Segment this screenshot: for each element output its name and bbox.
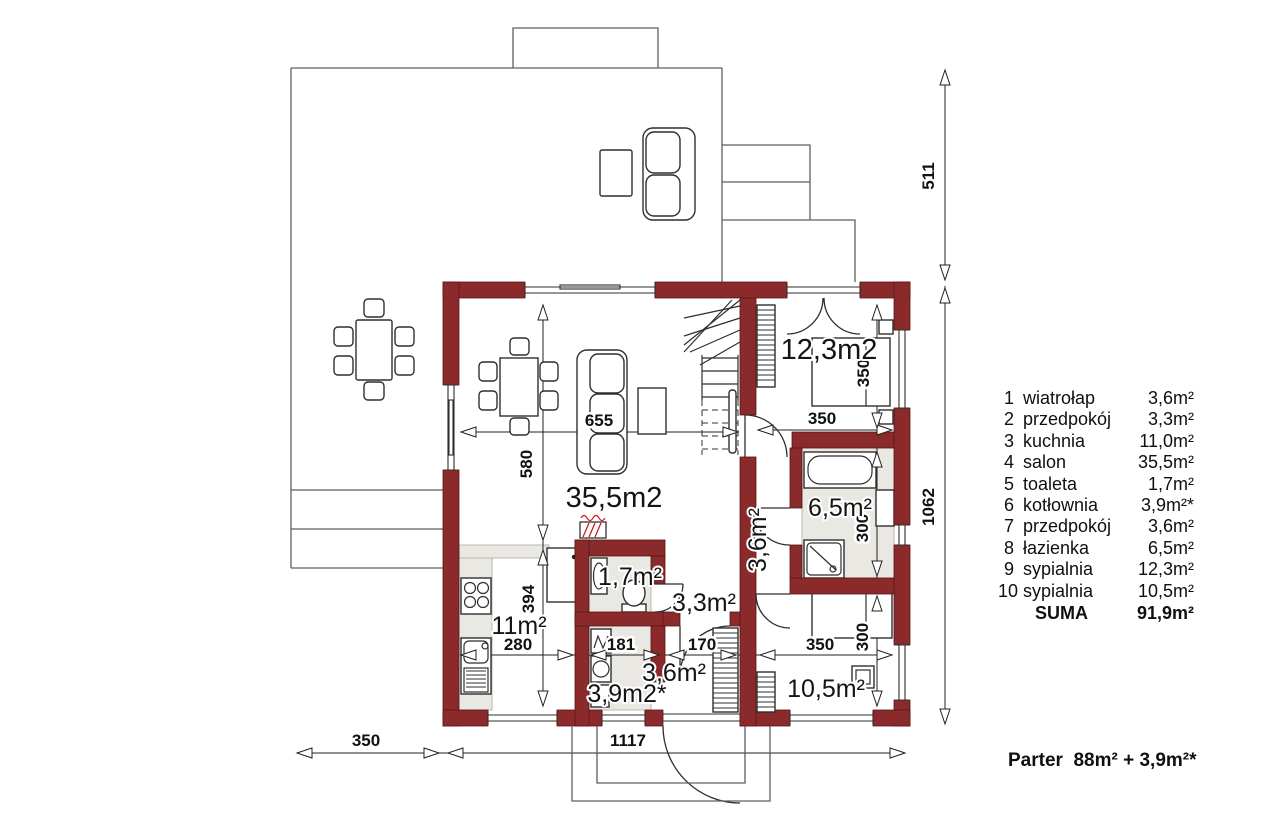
stair-railing <box>729 390 736 453</box>
coffee-table <box>638 388 666 434</box>
room-legend: 1wiatrołap3,6m² 2przedpokój3,3m² 3kuchni… <box>998 388 1194 624</box>
room-label-przedpokoj7: 3,6m² <box>744 508 772 572</box>
sink <box>461 638 491 694</box>
legend-row: 5toaleta1,7m² <box>998 474 1194 495</box>
dim-kotlownia-width: 181 <box>607 635 635 654</box>
floorplan-page: 350 1117 511 1062 655 580 394 280 181 17… <box>0 0 1280 822</box>
room-label-lazienka: 6,5m² <box>808 494 872 522</box>
dim-salon-depth: 580 <box>517 450 536 478</box>
wardrobe-bedroom9 <box>757 305 775 387</box>
legend-suma-row: SUMA91,9m² <box>998 603 1194 624</box>
room-label-kuchnia: 11m² <box>491 612 546 640</box>
dim-sypialnia9-width: 350 <box>808 409 836 428</box>
legend-row: 6kotłownia3,9m²* <box>998 495 1194 516</box>
legend-row: 8łazienka6,5m² <box>998 538 1194 559</box>
legend-row: 4salon35,5m² <box>998 452 1194 473</box>
legend-row: 9sypialnia12,3m² <box>998 559 1194 580</box>
dim-salon-width: 655 <box>585 411 613 430</box>
room-label-sypialnia10: 10,5m² <box>787 675 865 703</box>
bed <box>812 592 892 638</box>
room-label-przedpokoj2: 3,3m² <box>672 589 736 617</box>
entrance-door-arc <box>663 726 740 803</box>
dim-terrace-height: 511 <box>919 162 938 189</box>
suma-label: SUMA <box>1023 603 1130 624</box>
washing-machine <box>591 656 611 682</box>
room-label-toaleta: 1,7m² <box>598 563 662 591</box>
legend-row: 10sypialnia10,5m² <box>998 581 1194 602</box>
dim-sypialnia10-width: 350 <box>806 635 834 654</box>
dim-house-width: 1117 <box>610 731 646 750</box>
wardrobe-wiatrolap <box>713 628 738 712</box>
dim-wiatrolap-width: 170 <box>688 635 716 654</box>
bath-cabinet <box>876 490 894 526</box>
outdoor-lounge-set <box>600 128 695 220</box>
dim-house-height: 1062 <box>919 488 938 526</box>
legend-row: 2przedpokój3,3m² <box>998 409 1194 430</box>
floor-total-label: Parter 88m² + 3,9m²* <box>1008 750 1197 772</box>
dim-kitchen-depth: 394 <box>519 584 538 613</box>
legend-row: 7przedpokój3,6m² <box>998 516 1194 537</box>
room-label-salon: 35,5m2 <box>566 482 663 514</box>
room-label-wiatrolap: 3,6m² <box>642 659 706 687</box>
room-label-sypialnia9: 12,3m2 <box>781 334 878 366</box>
dim-sypialnia10-depth: 300 <box>853 623 872 651</box>
legend-row: 3kuchnia11,0m² <box>998 431 1194 452</box>
dim-terrace-width: 350 <box>352 731 380 750</box>
suma-value: 91,9m² <box>1130 603 1194 624</box>
wardrobe-bedroom10 <box>757 672 775 712</box>
legend-row: 1wiatrołap3,6m² <box>998 388 1194 409</box>
outdoor-dining-set <box>334 299 414 400</box>
